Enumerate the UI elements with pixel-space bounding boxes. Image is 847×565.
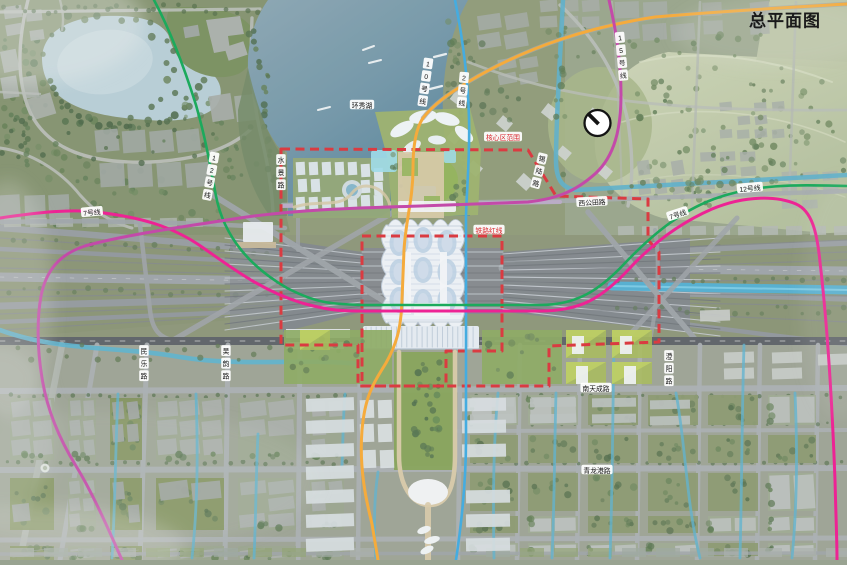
svg-text:路: 路 bbox=[666, 377, 673, 386]
svg-text:路: 路 bbox=[141, 372, 148, 381]
svg-text:青龙港路: 青龙港路 bbox=[583, 466, 610, 475]
svg-text:民: 民 bbox=[141, 347, 148, 355]
svg-text:水: 水 bbox=[278, 155, 285, 164]
svg-text:阳: 阳 bbox=[666, 364, 673, 373]
svg-text:韵: 韵 bbox=[223, 359, 230, 368]
svg-text:号: 号 bbox=[421, 85, 429, 94]
svg-text:号: 号 bbox=[618, 59, 626, 68]
svg-text:路: 路 bbox=[278, 181, 285, 190]
svg-text:乐: 乐 bbox=[141, 359, 148, 368]
svg-text:吴: 吴 bbox=[223, 347, 230, 355]
svg-text:核心区范围: 核心区范围 bbox=[486, 133, 520, 142]
svg-text:南天成路: 南天成路 bbox=[582, 384, 609, 393]
svg-text:路: 路 bbox=[223, 372, 230, 381]
svg-text:号: 号 bbox=[459, 87, 467, 96]
svg-text:总平面图: 总平面图 bbox=[749, 11, 821, 31]
svg-text:环秀湖: 环秀湖 bbox=[352, 101, 373, 110]
svg-text:铁路红线: 铁路红线 bbox=[475, 226, 502, 235]
svg-text:景: 景 bbox=[278, 169, 285, 177]
svg-text:澄: 澄 bbox=[666, 351, 673, 360]
